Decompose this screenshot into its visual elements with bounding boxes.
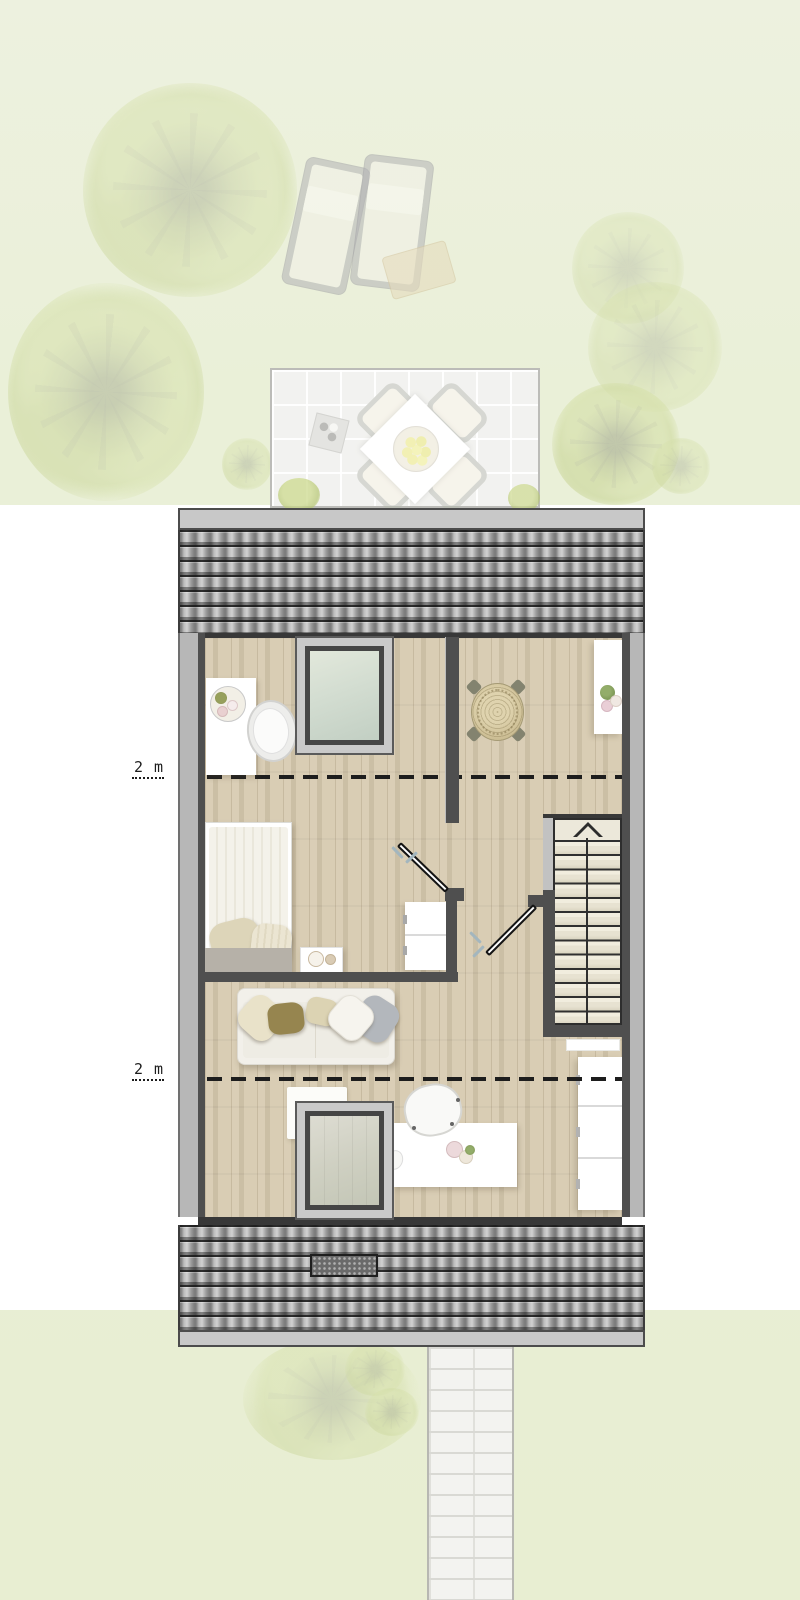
tree-small-left [222, 438, 272, 490]
roof-top [178, 530, 645, 633]
console-plate-white [610, 695, 622, 707]
roof-gutter-top [178, 508, 645, 530]
height-line-upper [207, 775, 622, 779]
exterior-wall-right [622, 633, 630, 1217]
bedroom-cabinet [405, 902, 447, 970]
stairwell-wall-left [543, 890, 555, 1037]
roof-gutter-bottom [178, 1330, 645, 1347]
exterior-eave-left [180, 633, 198, 1217]
height-label-lower-underline [132, 1067, 164, 1081]
tray-plate-green [215, 692, 227, 704]
stairwell-wall-bottom [543, 1025, 622, 1037]
wardrobe-handle [576, 1179, 580, 1189]
staircase [553, 818, 622, 1025]
wardrobe-divider [578, 1157, 622, 1159]
tree-large-top-left [83, 83, 297, 297]
garden-path [427, 1347, 514, 1600]
partition-wall-center [445, 637, 459, 823]
chair-caster [456, 1098, 460, 1102]
terrace-bush-left [278, 478, 320, 512]
window-glass [305, 646, 384, 745]
height-line-lower [207, 1077, 622, 1081]
sofa-pillow-olive [266, 1001, 305, 1036]
wardrobe-handle [576, 1127, 580, 1137]
roof-vent [310, 1254, 378, 1277]
desk-plant-sprig [465, 1145, 475, 1155]
chair-caster [450, 1122, 454, 1126]
exterior-wall-right-outline [643, 633, 645, 1217]
exterior-wall-bottom [198, 1217, 622, 1225]
partition-wall-horizontal [198, 972, 458, 982]
exterior-wall-left [198, 633, 205, 1217]
height-label-upper-underline [132, 765, 164, 779]
stair-center-divider [586, 838, 588, 1023]
cabinet-handle-top [403, 915, 407, 924]
exterior-wall-top [178, 633, 645, 638]
skylight-window-bottom [295, 1101, 394, 1220]
tray-cup [325, 954, 336, 965]
tree-bottom-blob-2 [365, 1388, 419, 1436]
skylight-window-top [295, 636, 394, 755]
stairwell-top-edge [543, 814, 622, 818]
stairs-up-arrow-icon [573, 822, 603, 837]
wicker-pouf [471, 683, 524, 741]
exterior-eave-right [630, 633, 643, 1217]
window-glass [305, 1111, 384, 1210]
partition-wall-vertical [446, 888, 457, 982]
patio-side-table [308, 412, 349, 453]
tray-plate-pink [217, 706, 228, 717]
cabinet-handle-bottom [403, 946, 407, 955]
tree-right-small [652, 438, 710, 494]
roof-bottom [178, 1225, 645, 1330]
tray-plate-white [227, 700, 238, 711]
tree-left [8, 283, 204, 501]
chair-caster [412, 1126, 416, 1130]
attic-floor-plan: 2 m 2 m [0, 0, 800, 1600]
bed-throw-gray [205, 948, 292, 974]
wardrobe-divider [578, 1105, 622, 1107]
tray-plate [308, 951, 324, 967]
under-stairs-shelf [566, 1039, 620, 1051]
cabinet-divider [405, 934, 447, 936]
fruit-bowl [393, 426, 439, 472]
